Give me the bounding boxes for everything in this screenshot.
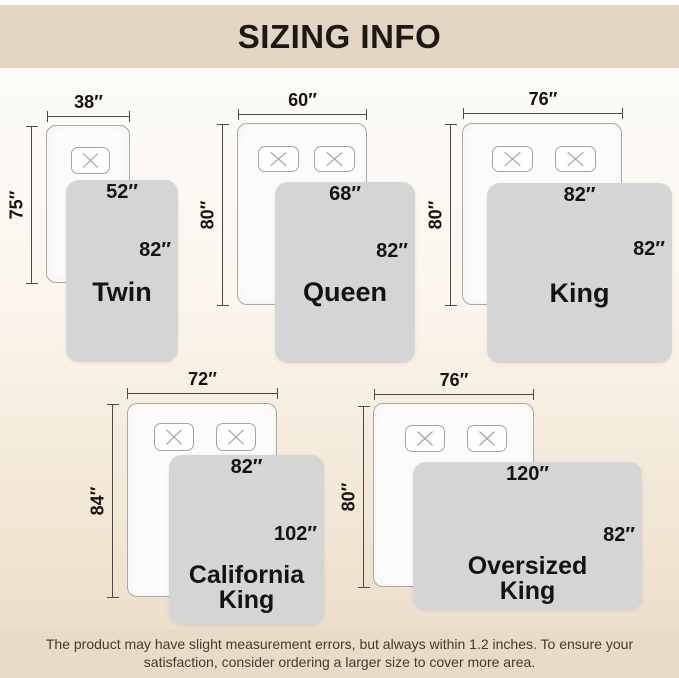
size-name: Twin [66, 279, 178, 306]
blanket-length-value: 82″ [603, 524, 635, 547]
size-name-line1: King [487, 280, 672, 307]
pillow [71, 147, 110, 174]
pillow-x-icon [217, 424, 255, 450]
blanket-width-value: 68″ [275, 183, 415, 206]
pillow-x-icon [406, 426, 444, 451]
pillow-x-icon [468, 426, 506, 451]
blanket-width-value: 52″ [66, 181, 178, 204]
bed-length-dimension-line: 84″ [112, 404, 113, 597]
pillow [555, 146, 596, 172]
bed-width-value: 72″ [188, 369, 217, 390]
bed-width-dimension-line: 76″ [374, 394, 534, 395]
bed-length-value: 80″ [339, 482, 360, 511]
pillow [314, 146, 355, 172]
bed-width-dimension-line: 72″ [127, 393, 278, 394]
bed-length-value: 75″ [7, 190, 28, 219]
size-name: Oversized King [413, 554, 642, 604]
bed-width-value: 38″ [74, 92, 103, 113]
blanket-length-value: 102″ [274, 523, 317, 546]
size-name-line1: California [169, 563, 324, 588]
blanket-oversized-king: 120″ 82″ Oversized King [413, 462, 642, 610]
bed-length-value: 84″ [88, 486, 109, 515]
pillow-x-icon [315, 147, 354, 171]
blanket-twin: 52″ 82″ Twin [66, 180, 178, 362]
bed-length-dimension-line: 80″ [363, 406, 364, 587]
footer-line-1: The product may have slight measurement … [0, 636, 679, 654]
size-name-line2: King [413, 579, 642, 604]
bed-length-value: 80″ [198, 200, 219, 229]
pillow [492, 146, 533, 172]
blanket-king: 82″ 82″ King [487, 183, 672, 363]
footer-note: The product may have slight measurement … [0, 629, 679, 678]
header-band: SIZING INFO [0, 5, 679, 68]
pillow [154, 423, 194, 451]
pillow-x-icon [556, 147, 595, 171]
size-name: Queen [275, 279, 415, 306]
bed-width-dimension-line: 38″ [47, 116, 130, 117]
bed-length-dimension-line: 75″ [31, 126, 32, 283]
blanket-width-value: 82″ [487, 184, 672, 207]
blanket-width-value: 120″ [413, 463, 642, 486]
pillow-x-icon [493, 147, 532, 171]
pillow-x-icon [259, 147, 298, 171]
pillow [405, 425, 445, 452]
size-name: California King [169, 563, 324, 613]
bed-width-value: 76″ [529, 89, 558, 110]
sizing-info-graphic: SIZING INFO 38″ 75″ 52″ 82″ Twin 60″ 80″ [0, 0, 679, 678]
blanket-length-value: 82″ [139, 239, 171, 262]
footer-line-2: satisfaction, consider ordering a larger… [0, 654, 679, 672]
bed-length-dimension-line: 80″ [450, 124, 451, 305]
bed-length-dimension-line: 80″ [222, 124, 223, 305]
pillow [467, 425, 507, 452]
bed-width-dimension-line: 76″ [463, 113, 623, 114]
size-name-line1: Twin [66, 279, 178, 306]
bed-width-dimension-line: 60″ [238, 114, 367, 115]
blanket-length-value: 82″ [633, 238, 665, 261]
pillow-x-icon [72, 148, 109, 173]
size-name-line1: Oversized [413, 554, 642, 579]
page-title: SIZING INFO [238, 18, 442, 56]
bed-width-value: 60″ [288, 90, 317, 111]
size-name-line1: Queen [275, 279, 415, 306]
blanket-width-value: 82″ [169, 456, 324, 479]
blanket-california-king: 82″ 102″ California King [169, 455, 324, 625]
bed-width-value: 76″ [440, 370, 469, 391]
size-name-line2: King [169, 588, 324, 613]
blanket-length-value: 82″ [376, 240, 408, 263]
blanket-queen: 68″ 82″ Queen [275, 182, 415, 363]
size-name: King [487, 280, 672, 307]
pillow [258, 146, 299, 172]
pillow [216, 423, 256, 451]
bed-length-value: 80″ [426, 200, 447, 229]
pillow-x-icon [155, 424, 193, 450]
